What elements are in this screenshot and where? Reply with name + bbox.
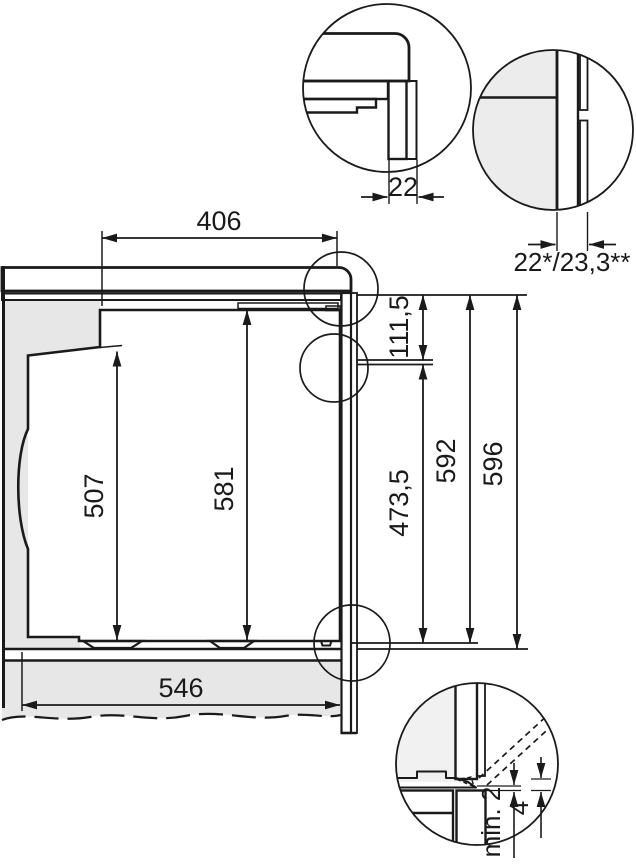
detail3-front-frame [456,680,478,779]
oven-door-strip [351,293,357,733]
detail2-front-frame [557,44,578,216]
installation-diagram-page: 406 507 581 111,5 473,5 592 596 546 [0,0,636,868]
dimension-4: 4 [504,757,551,838]
dim-min-2-label: min. 2 [476,787,506,858]
dim-406-label: 406 [196,206,241,236]
dim-111-5-label: 111,5 [384,295,414,359]
top-rail [238,303,338,309]
dimension-507: 507 [79,352,117,641]
oven-front-frame [342,293,352,733]
detail2-door-strip-upper [580,44,588,110]
dim-596-label: 596 [478,441,508,486]
oven-foot-front [210,641,254,648]
dim-4-label: 4 [504,801,534,815]
detail1-worktop [300,34,409,82]
dim-581-label: 581 [209,466,239,511]
dimension-581: 581 [209,310,247,640]
detail3-shelf-board [394,791,453,851]
worktop [2,268,351,292]
dim-507-top-tick [100,346,122,348]
cabinet-bottom-fill [2,637,80,649]
detail1-trim-upper [298,81,388,99]
detail-circle-worktop-edge: 22 [298,4,471,204]
detail2-furniture-fill [470,47,557,213]
cabinet-back-fill [2,300,100,637]
dimension-111-5: 111,5 [384,295,423,360]
dim-592-label: 592 [431,438,461,483]
dimension-473-5: 473,5 [384,365,423,644]
detail1-front-frame [389,81,407,159]
dim-473-5-label: 473,5 [384,469,414,537]
dim-22-23-3-label: 22*/23,3** [513,247,630,277]
detail1-trim-lower [298,99,376,113]
oven-body [18,310,340,641]
dim-546-label: 546 [158,673,203,703]
oven-foot-rear [83,641,142,648]
dim-22-label: 22 [388,172,418,202]
detail3-door-swing-line-2 [487,721,557,785]
worktop-trim [2,294,341,301]
detail-circle-bottom-front: min. 2 4 [394,680,558,858]
detail1-door-strip [407,81,417,159]
detail3-door-strip [477,680,485,776]
installation-diagram: 406 507 581 111,5 473,5 592 596 546 [0,0,636,868]
detail-circle-front-frame: 22*/23,3** [470,44,633,277]
dimension-592: 592 [431,295,470,643]
dimension-596: 596 [478,295,517,649]
dim-507-label: 507 [79,473,109,518]
